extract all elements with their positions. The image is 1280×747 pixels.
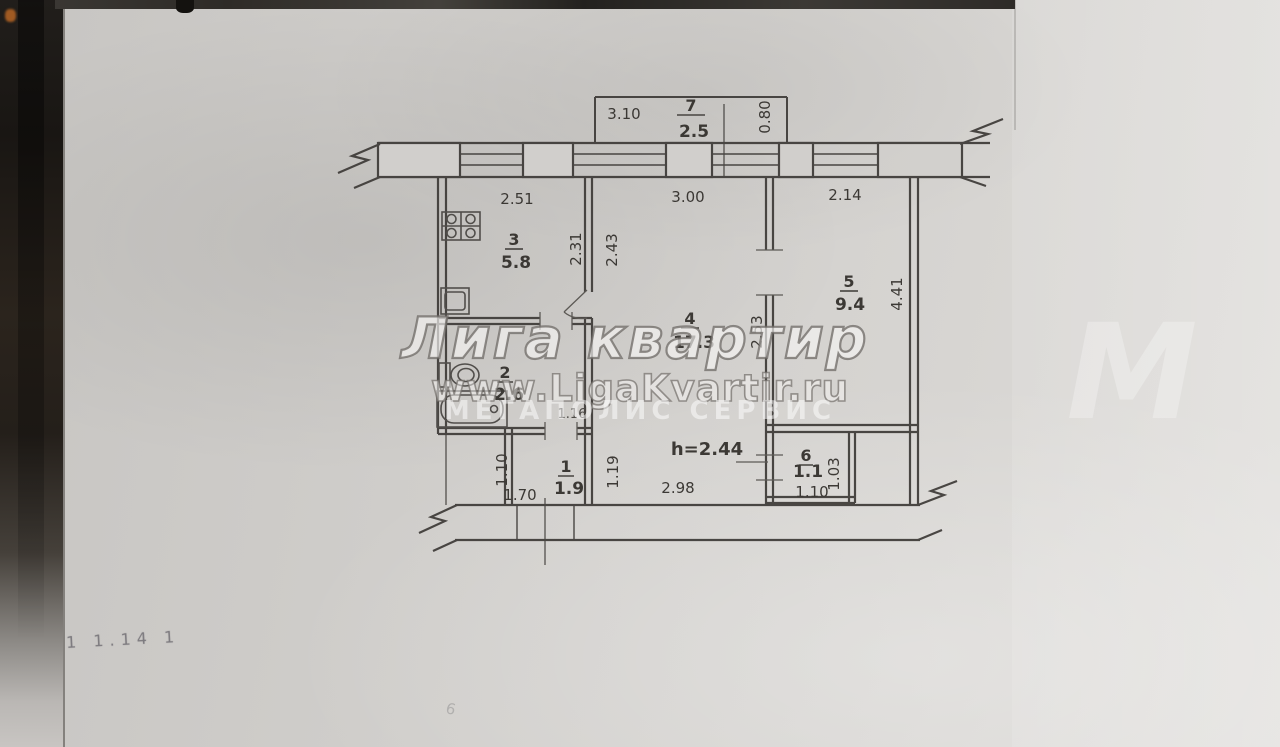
wall-break-mark-right — [918, 481, 957, 540]
dim-living-depth-left: 2.43 — [603, 233, 621, 266]
wall-break-mark-left — [338, 144, 380, 188]
dim-balcony-top-width: 3.10 — [607, 105, 640, 123]
wall-pier — [378, 143, 460, 177]
sink-basin — [445, 292, 465, 310]
bathtub-drain — [491, 406, 498, 413]
wall-pier — [666, 143, 712, 177]
dim-hall-depth-left: 1.10 — [493, 453, 511, 486]
dim-balcony-bottom-width: 1.10 — [795, 483, 828, 501]
dim-kitchen-width: 2.51 — [500, 190, 533, 208]
room5-area: 9.4 — [835, 295, 865, 315]
dim-living-depth-right: 2.53 — [748, 315, 766, 348]
wall-pier — [523, 143, 573, 177]
living-bedroom-door-ticks — [756, 250, 783, 295]
dim-hall-depth-right: 1.19 — [604, 455, 622, 488]
room4-number: 4 — [684, 309, 695, 328]
toilet-bowl-inner — [458, 369, 474, 382]
bedroom-bottom-wall — [766, 425, 918, 432]
room1-number: 1 — [560, 457, 571, 476]
room3-area: 5.8 — [501, 253, 531, 273]
toilet-tank — [439, 363, 450, 387]
dim-living-width: 3.00 — [671, 188, 704, 206]
photo-of-floor-plan: 3.10 7 2.5 0.80 2.51 3.00 2.14 3 5.8 2.3… — [0, 0, 1280, 747]
wall-pier — [779, 143, 813, 177]
ceiling-height-note: h=2.44 — [671, 439, 743, 460]
dim-living-bottom-width: 2.98 — [661, 479, 694, 497]
dim-bedroom-depth: 4.41 — [888, 277, 906, 310]
closet-door-ticks — [756, 455, 783, 480]
floor-plan-drawing: 3.10 7 2.5 0.80 2.51 3.00 2.14 3 5.8 2.3… — [0, 0, 1280, 747]
dim-bedroom-width: 2.14 — [828, 186, 861, 204]
dim-balcony-top-depth: 0.80 — [756, 100, 774, 133]
door-opening-ticks — [540, 250, 783, 480]
room7-number: 7 — [685, 96, 696, 115]
burner — [466, 229, 475, 238]
room5-number: 5 — [843, 272, 854, 291]
dim-bath-width: 1.70 — [503, 486, 536, 504]
wall-break-mark-left — [419, 505, 457, 551]
burner — [447, 215, 456, 224]
living-bedroom-wall — [766, 177, 773, 505]
kitchen-bath-divider-wall — [438, 318, 592, 324]
dim-balcony-bottom-depth: 1.03 — [825, 457, 843, 490]
room3-number: 3 — [508, 230, 519, 249]
stove-icon — [442, 212, 480, 240]
room2-area: 2.6 — [494, 385, 524, 405]
room4-area: 17.3 — [673, 333, 715, 353]
dim-kitchen-depth: 2.31 — [567, 232, 585, 265]
room7-area: 2.5 — [679, 122, 709, 142]
room2-number: 2 — [499, 363, 510, 382]
wall-pier — [878, 143, 962, 177]
bath-bottom-hall-top-wall — [438, 428, 592, 434]
burner — [447, 229, 456, 238]
right-outer-wall — [910, 177, 918, 505]
kitchen-door-leaf — [564, 290, 587, 318]
room6-area: 1.1 — [793, 462, 823, 482]
strip-right-wall — [585, 177, 592, 505]
dim-hall-door-width: 1.16 — [558, 407, 587, 422]
wall-faces — [455, 505, 920, 540]
hall-door-ticks — [545, 422, 577, 440]
room1-area: 1.9 — [554, 479, 584, 499]
burner — [466, 215, 475, 224]
